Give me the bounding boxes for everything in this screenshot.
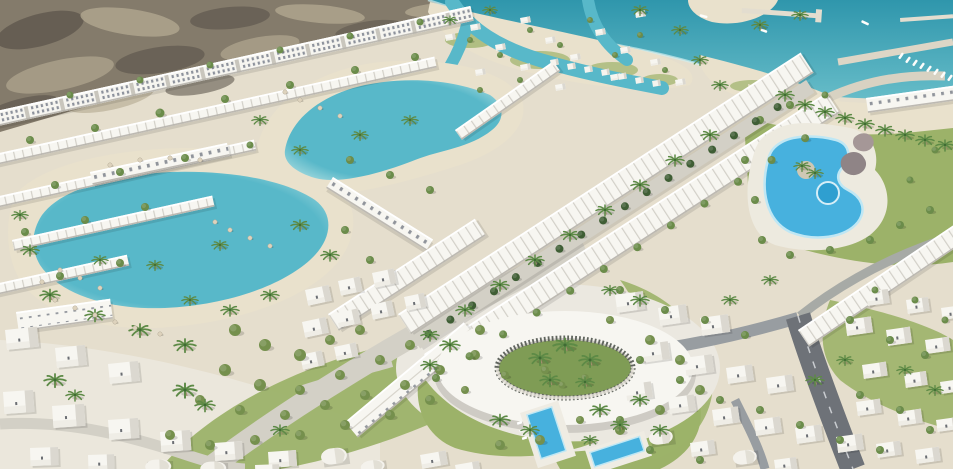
villa [108,418,141,442]
villa [906,297,932,316]
villa [30,447,61,468]
lagoon-pool [748,123,888,250]
villa [160,430,193,454]
villa [55,345,89,370]
villa [3,390,37,416]
villa [5,326,41,351]
villa [214,441,245,463]
villa [108,361,142,386]
villa [88,454,117,469]
villa [52,404,88,430]
villa [684,354,716,378]
resort-render-stage: architectural-aerial-render Aerial 3D re… [0,0,953,469]
resort-aerial-render: architectural-aerial-render Aerial 3D re… [0,0,953,469]
ring-building [434,311,696,433]
spa-pool [817,182,839,204]
